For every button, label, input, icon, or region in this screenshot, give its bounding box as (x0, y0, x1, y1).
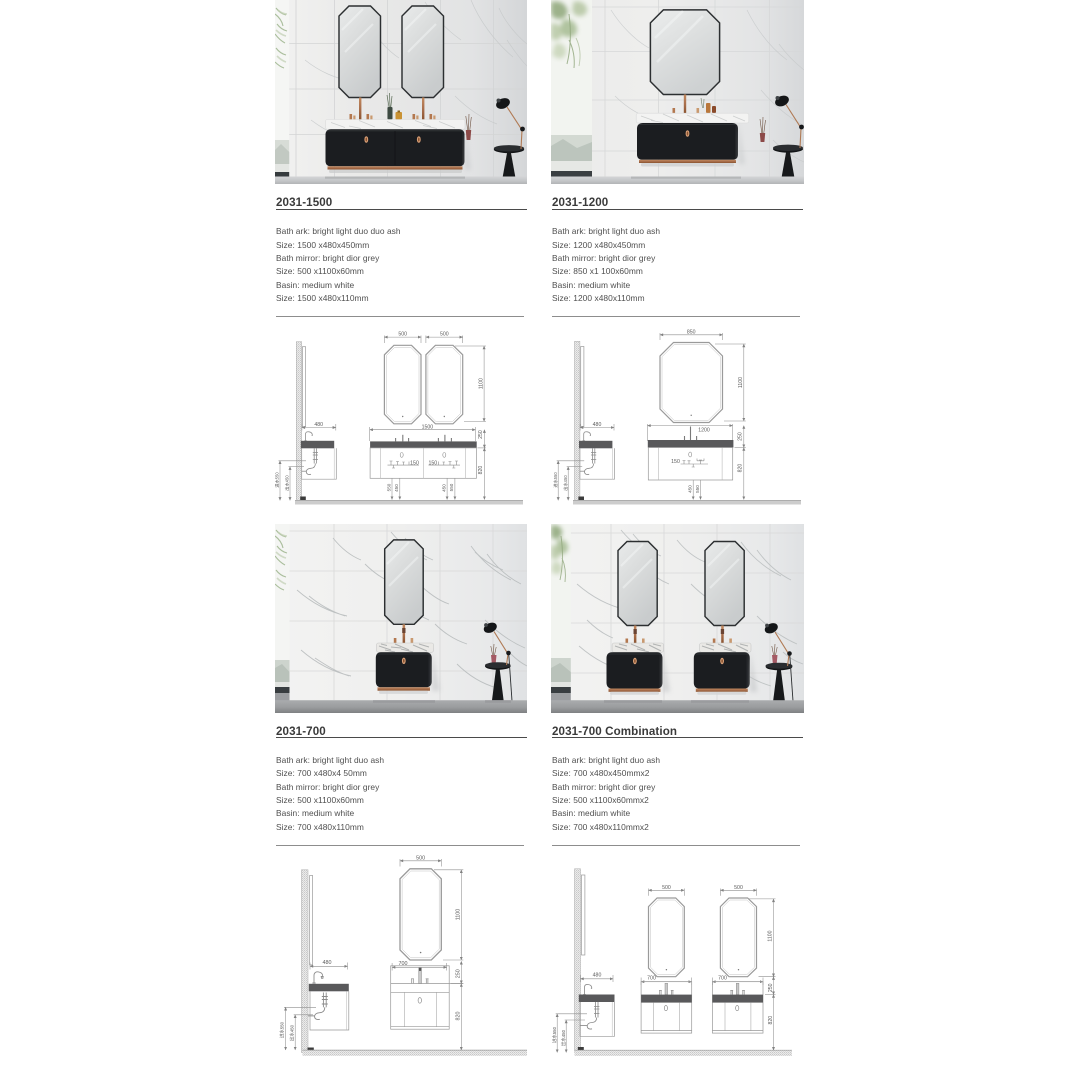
svg-text:进水550: 进水550 (551, 1026, 558, 1043)
svg-text:进水550: 进水550 (552, 472, 559, 488)
svg-text:150: 150 (671, 459, 680, 465)
svg-text:500: 500 (734, 885, 743, 891)
svg-text:550: 550 (386, 483, 391, 491)
svg-text:450: 450 (688, 485, 693, 493)
svg-text:820: 820 (455, 1012, 461, 1021)
svg-text:150: 150 (428, 460, 437, 466)
svg-text:250: 250 (478, 430, 484, 439)
svg-text:820: 820 (738, 464, 744, 473)
svg-text:250: 250 (455, 969, 461, 978)
svg-text:1100: 1100 (456, 909, 462, 921)
svg-text:1200: 1200 (698, 427, 710, 433)
svg-text:150: 150 (410, 460, 419, 466)
svg-text:出水450: 出水450 (562, 475, 569, 491)
svg-text:850: 850 (687, 329, 696, 335)
svg-text:480: 480 (314, 422, 323, 428)
svg-text:550: 550 (695, 485, 700, 493)
svg-text:出水450: 出水450 (560, 1029, 567, 1046)
svg-text:820: 820 (768, 1016, 774, 1025)
svg-text:250: 250 (768, 983, 774, 992)
svg-text:1100: 1100 (738, 377, 744, 388)
svg-text:500: 500 (416, 855, 425, 861)
svg-text:1500: 1500 (422, 424, 434, 430)
svg-text:480: 480 (593, 973, 602, 979)
svg-text:450: 450 (441, 484, 446, 492)
svg-text:1100: 1100 (768, 930, 774, 941)
svg-text:700: 700 (399, 961, 408, 967)
svg-text:700: 700 (647, 976, 656, 982)
svg-text:450: 450 (394, 484, 399, 492)
svg-text:进水550: 进水550 (279, 1021, 286, 1038)
svg-text:出水450: 出水450 (289, 1024, 296, 1041)
svg-text:500: 500 (662, 885, 671, 891)
svg-text:480: 480 (323, 960, 332, 966)
svg-text:480: 480 (593, 422, 602, 428)
svg-text:1100: 1100 (479, 378, 485, 389)
svg-text:700: 700 (718, 976, 727, 982)
svg-text:250: 250 (738, 432, 744, 441)
svg-text:500: 500 (440, 332, 449, 338)
svg-text:500: 500 (398, 332, 407, 338)
svg-text:550: 550 (449, 483, 454, 491)
svg-text:出水450: 出水450 (284, 475, 291, 491)
svg-text:820: 820 (478, 466, 484, 475)
